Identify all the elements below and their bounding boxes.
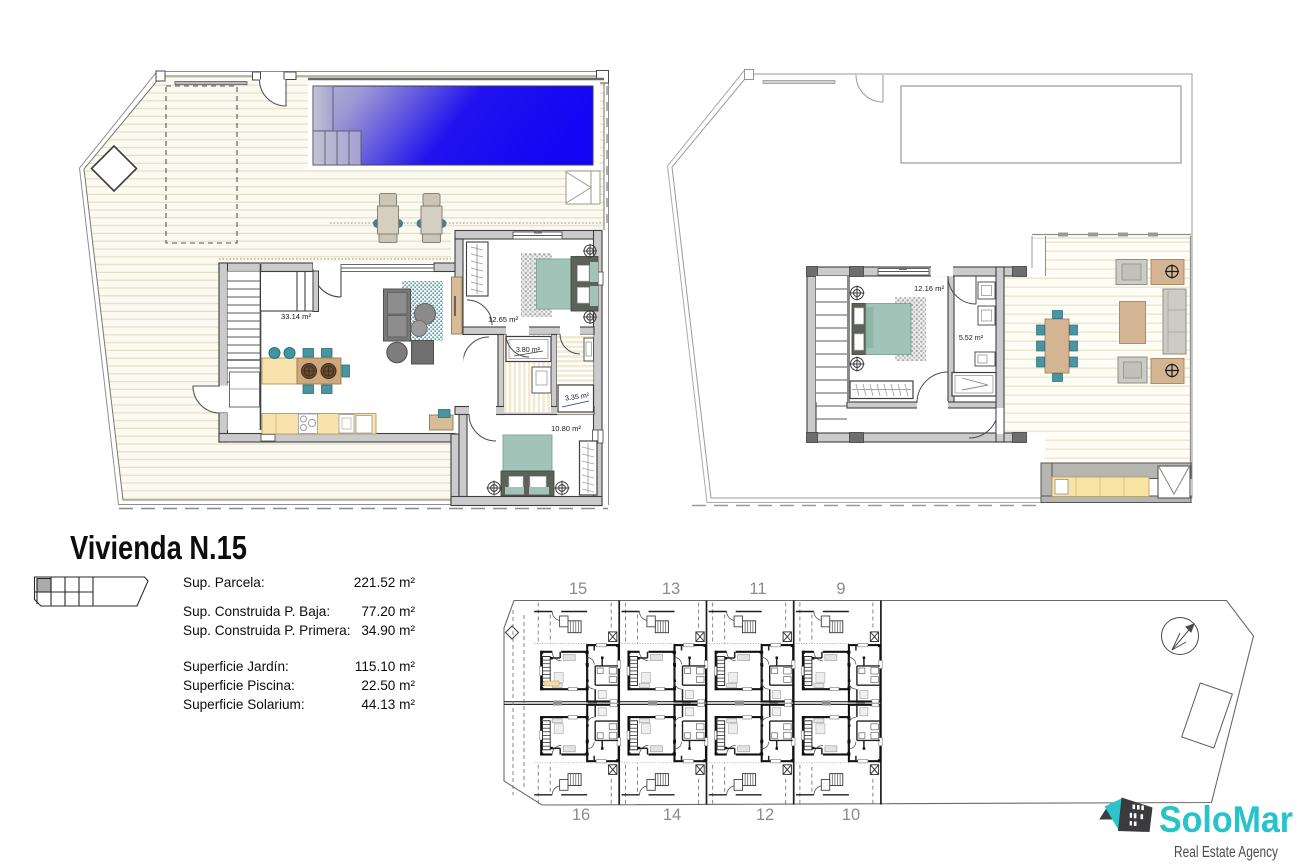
- svg-text:14: 14: [663, 806, 681, 824]
- svg-text:Sup. Construida P. Primera:: Sup. Construida P. Primera:: [183, 623, 351, 638]
- svg-text:15: 15: [569, 580, 587, 598]
- svg-text:5.52 m²: 5.52 m²: [959, 333, 984, 342]
- svg-text:11: 11: [749, 580, 766, 598]
- svg-text:12.65 m²: 12.65 m²: [488, 315, 518, 324]
- svg-text:22.50 m²: 22.50 m²: [361, 678, 415, 693]
- svg-text:Sup. Parcela:: Sup. Parcela:: [183, 575, 265, 590]
- svg-text:Superficie Piscina:: Superficie Piscina:: [183, 678, 295, 693]
- svg-text:10: 10: [842, 806, 860, 824]
- svg-text:115.10 m²: 115.10 m²: [355, 659, 416, 674]
- svg-text:Superficie Jardín:: Superficie Jardín:: [183, 659, 289, 674]
- svg-text:10.80 m²: 10.80 m²: [551, 424, 581, 433]
- svg-text:44.13 m²: 44.13 m²: [361, 697, 415, 712]
- svg-text:13: 13: [662, 580, 680, 598]
- svg-text:Sup. Construida P. Baja:: Sup. Construida P. Baja:: [183, 604, 330, 619]
- svg-text:34.90 m²: 34.90 m²: [361, 623, 415, 638]
- svg-text:9: 9: [836, 580, 845, 598]
- svg-text:12.16 m²: 12.16 m²: [914, 284, 944, 293]
- svg-text:Real Estate Agency: Real Estate Agency: [1174, 844, 1278, 861]
- svg-text:3.80 m²: 3.80 m²: [516, 345, 541, 354]
- svg-text:16: 16: [572, 806, 590, 824]
- svg-text:12: 12: [756, 806, 774, 824]
- svg-text:221.52 m²: 221.52 m²: [354, 575, 416, 590]
- svg-text:Vivienda N.15: Vivienda N.15: [70, 529, 247, 566]
- svg-text:33.14 m²: 33.14 m²: [281, 312, 311, 321]
- svg-text:Superficie Solarium:: Superficie Solarium:: [183, 697, 305, 712]
- svg-text:SoloMar: SoloMar: [1159, 799, 1293, 840]
- svg-text:77.20 m²: 77.20 m²: [361, 604, 415, 619]
